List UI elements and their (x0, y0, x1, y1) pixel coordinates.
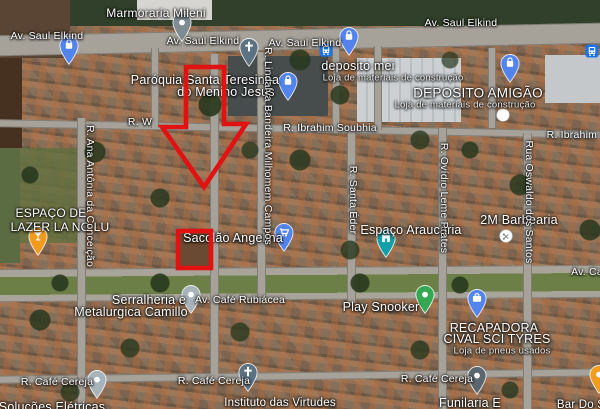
poi-label[interactable]: CIVAL SCI TYRES (444, 332, 551, 346)
street-label: Av. Saul Elkind (167, 35, 240, 47)
poi-label[interactable]: Instituto das Virtudes (224, 397, 336, 409)
street-label: R. Café Cereja (21, 376, 93, 388)
vegetation-band (0, 0, 600, 26)
street-label: Av. Ca (571, 266, 600, 278)
poi-label[interactable]: Metalurgica Camillo (74, 305, 188, 319)
road-vertical (210, 54, 219, 374)
street-label: R. Lindalva Bandeira Milhomem Campos (262, 47, 274, 245)
poi-label[interactable]: Soluções Elétricas (0, 400, 105, 409)
street-label: R. Café Cereja (401, 373, 473, 385)
poi-label[interactable]: DEPOSITO AMIGÃO (413, 86, 543, 101)
street-label: R. Café Cereja (178, 375, 250, 387)
street-label: R. Ibrahim Soubhia (283, 122, 376, 134)
poi-label[interactable]: Marmoraria Mileni (106, 6, 205, 20)
bus-stop-icon[interactable] (586, 45, 599, 58)
shopping-bag-pin[interactable] (277, 72, 299, 102)
street-label: R. Santa Éder (347, 166, 359, 235)
barber-poi-icon[interactable] (499, 229, 514, 244)
tire-shop-pin[interactable] (466, 289, 488, 319)
street-label: R. W (128, 116, 152, 128)
poi-label[interactable]: Play Snooker (343, 300, 420, 314)
street-label: R. Ana Antônia da Conceição (84, 125, 96, 267)
poi-label[interactable]: deposito mei (321, 59, 394, 73)
poi-label[interactable]: Bar Do S (557, 399, 600, 409)
poi-label[interactable]: 2M Barbearia (480, 213, 557, 227)
road-av-cafe-rubiacea (0, 265, 600, 302)
place-pin[interactable] (588, 365, 600, 395)
poi-label[interactable]: ESPAÇO DE (16, 206, 87, 220)
shopping-bag-pin[interactable] (499, 54, 521, 84)
poi-sublabel: Loja de materiais de construção (323, 73, 464, 84)
street-label: R. Ibrahim S (547, 129, 600, 141)
poi-label[interactable]: do Menino Jesus (177, 85, 275, 99)
street-label: R. Ovídio Leme Prates (438, 143, 450, 253)
street-label: Av. Saul Elkind (425, 17, 498, 29)
church-pin[interactable] (238, 38, 260, 68)
street-label: Av. Café Rubiácea (195, 294, 285, 306)
road-vertical (151, 48, 159, 128)
warehouse-roof (545, 55, 600, 103)
satellite-map[interactable]: Marmoraria MileniAv. Saul ElkindAv. Saul… (0, 0, 600, 409)
street-label: Av. Saul Elkind (11, 30, 84, 42)
poi-sublabel: Loja de materiais de construção (395, 100, 536, 111)
street-label: Av. Saul Elkind (269, 37, 342, 49)
street-label: Rua Oswaldo dos Santos (523, 141, 535, 264)
poi-label[interactable]: Funilaria E (439, 396, 501, 409)
poi-sublabel: Loja de pneus usados (454, 346, 551, 357)
dirt-field (0, 58, 22, 148)
